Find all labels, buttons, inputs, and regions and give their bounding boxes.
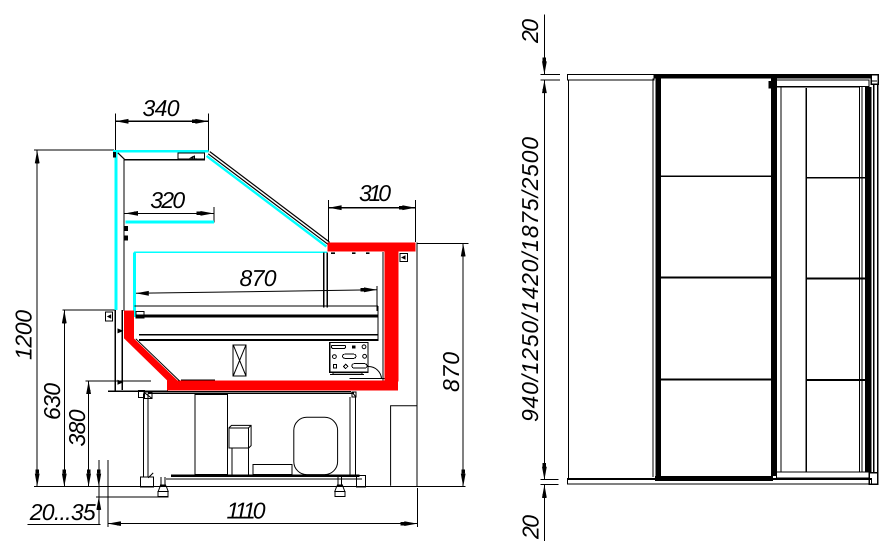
- svg-text:940/1250/1420/1875/2500: 940/1250/1420/1875/2500: [517, 137, 543, 422]
- svg-text:870: 870: [240, 265, 277, 291]
- svg-text:1200: 1200: [11, 310, 37, 360]
- svg-text:310: 310: [359, 180, 391, 206]
- svg-text:630: 630: [39, 383, 65, 420]
- svg-text:1110: 1110: [227, 498, 266, 524]
- svg-text:320: 320: [150, 187, 185, 213]
- svg-text:870: 870: [438, 352, 464, 392]
- svg-text:380: 380: [64, 409, 90, 446]
- svg-text:340: 340: [143, 95, 180, 121]
- svg-text:20: 20: [518, 515, 544, 540]
- svg-text:20: 20: [517, 19, 543, 44]
- svg-text:20...35: 20...35: [29, 499, 96, 525]
